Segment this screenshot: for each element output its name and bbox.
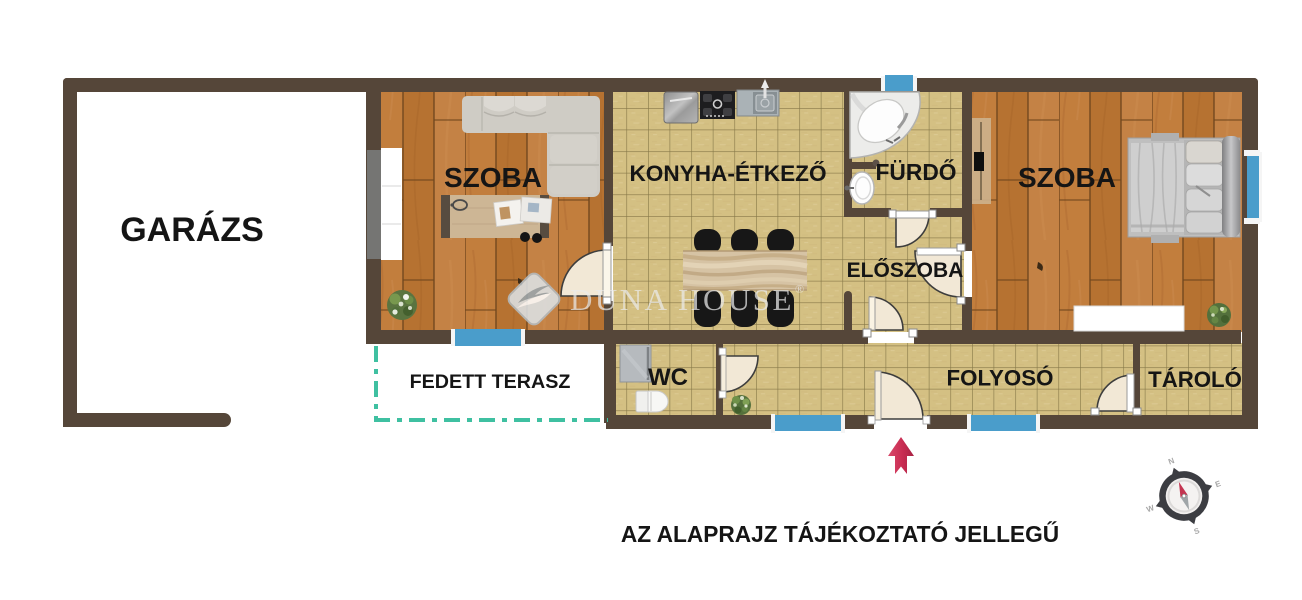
svg-text:E: E [1214,479,1223,490]
svg-text:DUNA HOUSE: DUNA HOUSE [570,282,794,317]
svg-text:KONYHA-ÉTKEZŐ: KONYHA-ÉTKEZŐ [629,161,826,186]
svg-text:WC: WC [648,364,688,391]
svg-text:FOLYOSÓ: FOLYOSÓ [947,366,1054,391]
svg-text:AZ ALAPRAJZ TÁJÉKOZTATÓ JELLEG: AZ ALAPRAJZ TÁJÉKOZTATÓ JELLEGŰ [621,521,1059,547]
svg-text:®: ® [795,282,804,296]
svg-text:TÁROLÓ: TÁROLÓ [1148,367,1242,392]
svg-text:GARÁZS: GARÁZS [120,211,264,249]
svg-text:W: W [1145,503,1156,514]
svg-text:N: N [1167,456,1176,467]
svg-text:S: S [1193,526,1202,537]
svg-text:SZOBA: SZOBA [1018,162,1116,193]
svg-text:ELŐSZOBA: ELŐSZOBA [847,259,964,282]
svg-text:SZOBA: SZOBA [444,162,542,193]
svg-text:FEDETT TERASZ: FEDETT TERASZ [410,371,571,393]
svg-text:FÜRDŐ: FÜRDŐ [875,159,956,185]
